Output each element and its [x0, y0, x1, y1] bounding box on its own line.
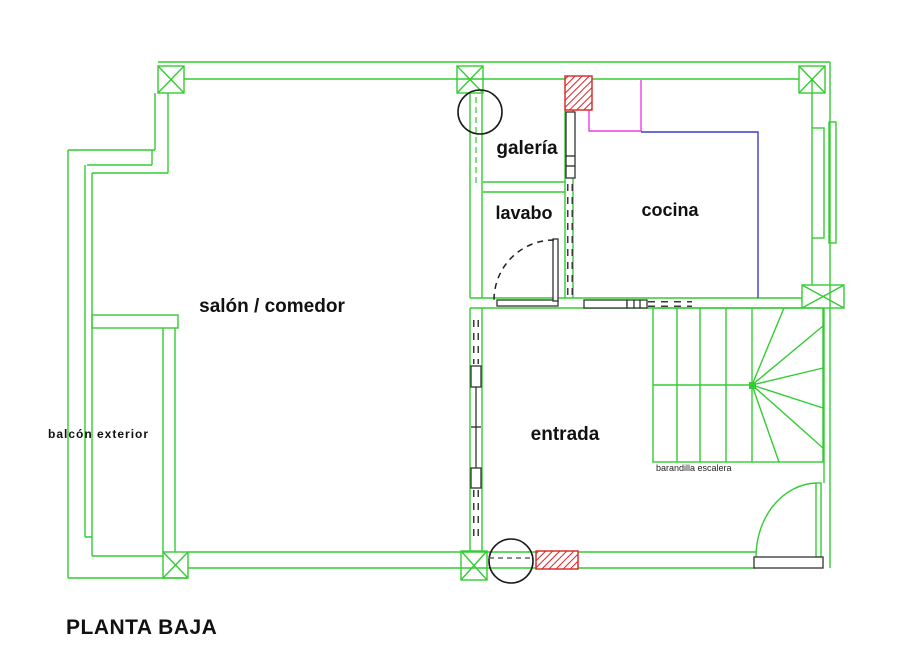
window-symbols [471, 112, 692, 542]
label-stair-railing: barandilla escalera [656, 463, 732, 473]
plan-title: PLANTA BAJA [66, 616, 217, 639]
partition-window-frame-top [471, 366, 481, 387]
kitchen-south-window [584, 300, 627, 308]
right-wall-window [812, 122, 836, 243]
entry-door [756, 483, 821, 557]
toilet-door-leaf [553, 239, 558, 301]
kitchen-west-window [566, 112, 575, 178]
label-gallery: galería [496, 138, 558, 159]
toilet-door-threshold [497, 300, 558, 306]
label-balcony: balcón exterior [48, 427, 149, 441]
partition-window-frame-bottom [471, 468, 481, 488]
label-entrance: entrada [531, 424, 600, 445]
floor-plan-drawing: salón / comedor galería lavabo cocina en… [0, 0, 900, 664]
balcony-window-bar [92, 315, 178, 328]
toilet-door-swing-arc [494, 240, 554, 300]
staircase [653, 308, 823, 462]
column-bottom-middle [461, 551, 487, 580]
toilet-door [494, 239, 558, 306]
label-toilet: lavabo [495, 203, 552, 223]
column-top-left [158, 66, 184, 93]
kitchen-magenta-line [589, 80, 641, 131]
column-right-middle [802, 285, 844, 308]
label-kitchen: cocina [641, 200, 699, 220]
junction-circle-top [458, 90, 502, 134]
entry-door-leaf [816, 483, 821, 557]
entry-door-swing-arc [756, 483, 816, 557]
label-living-room: salón / comedor [199, 296, 345, 317]
balcony-walls [68, 93, 188, 578]
hatched-shaft-bottom [536, 551, 578, 569]
kitchen-south-window-2 [627, 300, 647, 308]
floor-plan-canvas: salón / comedor galería lavabo cocina en… [0, 0, 900, 664]
entry-threshold [754, 557, 823, 568]
stair-fan-center [749, 382, 756, 389]
junction-circle-bottom [489, 539, 533, 583]
room-labels: salón / comedor galería lavabo cocina en… [48, 138, 732, 639]
hatched-shaft-top [565, 76, 592, 110]
column-balcony-bottom [163, 552, 188, 578]
